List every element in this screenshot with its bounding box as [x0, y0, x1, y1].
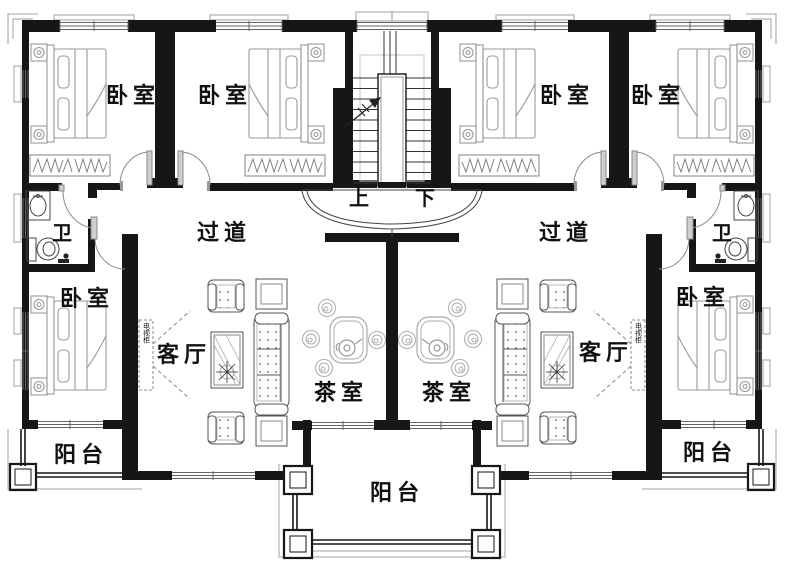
stair-rail-foot	[378, 182, 406, 188]
armchair-top	[208, 280, 244, 312]
label-bedroom-bottom-right: 卧室	[676, 285, 730, 310]
window-top-1	[60, 21, 128, 31]
floor-drain	[58, 253, 69, 263]
label-bath-left: 卫	[52, 223, 74, 245]
label-balcony-right: 阳台	[683, 440, 737, 465]
sofa	[254, 313, 289, 415]
armchair-bottom	[208, 412, 244, 444]
window-top-2	[216, 21, 282, 31]
stair-landing-rail	[378, 74, 406, 186]
label-tv-cabinet-right: 电视柜	[635, 322, 643, 345]
wardrobe-inner	[245, 155, 325, 176]
label-bedroom-top-left-outer: 卧室	[106, 83, 160, 108]
stair-upper-rails	[384, 31, 396, 74]
label-living-right: 客厅	[579, 340, 633, 365]
label-bedroom-top-right-outer: 卧室	[631, 83, 685, 108]
label-bath-right: 卫	[712, 223, 734, 245]
label-bedroom-top-left-inner: 卧室	[198, 83, 252, 108]
bed-top-inner	[249, 44, 324, 143]
end-table-bottom	[256, 416, 287, 446]
floor-plan-canvas: 卧室 卧室 卧室 卧室 卫 卫 过道 过道 上 下 卧室 卧室 客厅 客厅 茶室…	[0, 0, 789, 572]
label-bedroom-top-right-inner: 卧室	[540, 83, 594, 108]
door-bedroom-top-outer	[120, 151, 152, 191]
hall-arch	[302, 190, 482, 237]
sink	[26, 191, 50, 220]
tea-room-set	[303, 300, 386, 377]
window-stair-bay	[357, 21, 392, 31]
label-bedroom-bottom-left: 卧室	[60, 286, 114, 311]
end-table-top	[256, 279, 287, 309]
label-hallway-left: 过道	[197, 220, 251, 245]
door-bedroom-top-inner	[178, 151, 210, 191]
staircase	[302, 31, 482, 237]
label-tea-right: 茶室	[422, 380, 476, 405]
label-hallway-right: 过道	[539, 220, 593, 245]
label-balcony-left: 阳台	[54, 442, 108, 467]
label-stairs-up: 上	[349, 187, 371, 210]
window-left-bedroom-bottom	[22, 312, 29, 390]
label-balcony-center: 阳台	[370, 480, 424, 505]
window-living-south	[172, 471, 255, 480]
label-stairs-down: 下	[415, 188, 437, 210]
coffee-table	[211, 332, 243, 388]
label-tea-left: 茶室	[314, 380, 368, 405]
window-tea-south	[312, 421, 374, 430]
door-bedroom-bottom	[91, 217, 125, 269]
label-living-left: 客厅	[157, 342, 211, 367]
floor-plan: 卧室 卧室 卧室 卧室 卫 卫 过道 过道 上 下 卧室 卧室 客厅 客厅 茶室…	[0, 0, 789, 572]
bed-top-outer	[31, 44, 106, 143]
wardrobe-outer	[30, 155, 110, 176]
window-balcony-bedroom	[38, 420, 103, 429]
label-tv-cabinet-left: 电视柜	[143, 322, 151, 345]
